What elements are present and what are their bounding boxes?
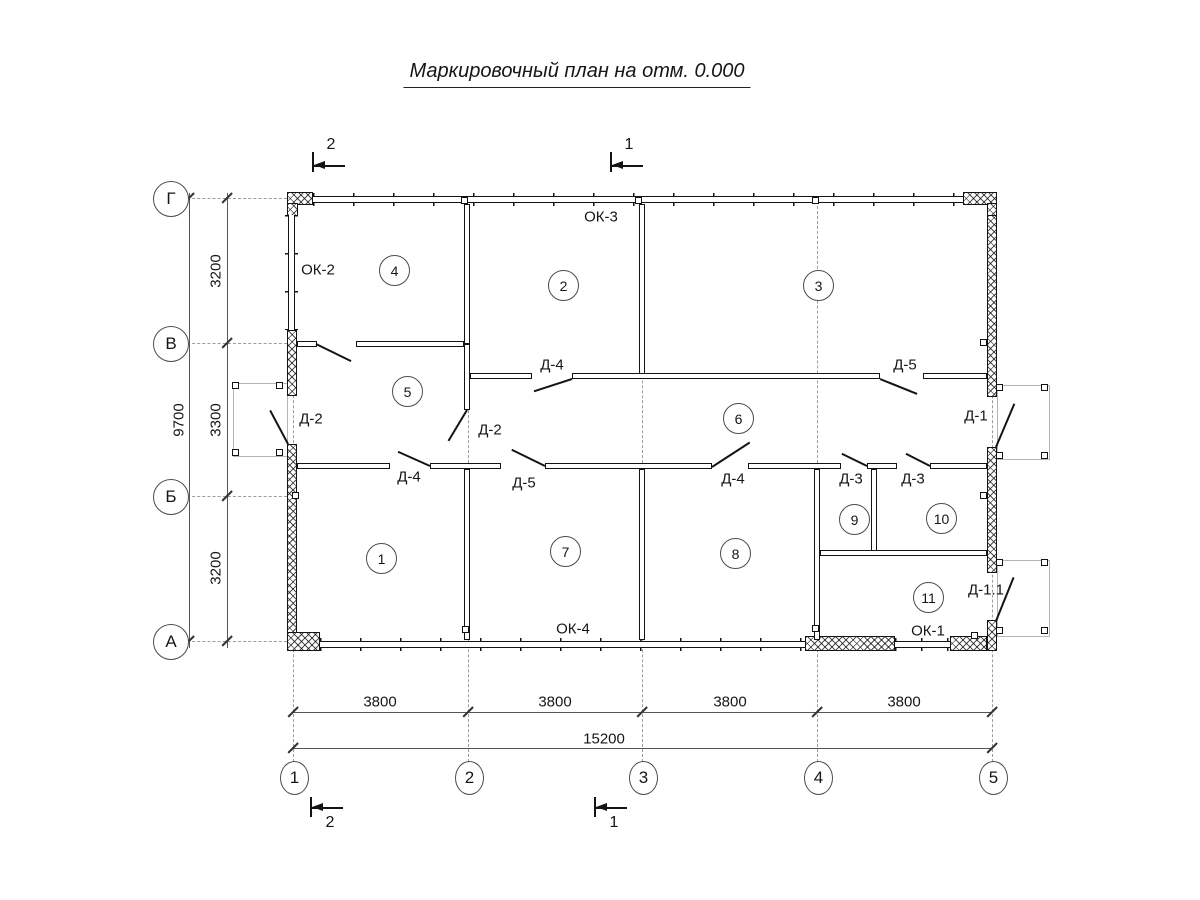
section-arrow-icon [612,161,623,169]
partition-wall [297,341,317,347]
grid-row-label-v: В [153,326,189,362]
wall-anchor [635,197,642,204]
door-leaf-d4 [711,442,750,468]
grid-line-row-g [187,198,287,199]
partition-wall [572,373,880,379]
wall-anchor [980,492,987,499]
wall-anchor [971,632,978,639]
dim-value-3800-4: 3800 [887,694,920,711]
wall-anchor [462,626,469,633]
door-label-d1: Д-1 [964,408,988,425]
section-arrow-icon [312,803,323,811]
dim-line [189,193,190,648]
grid-line-row-v [187,343,287,344]
door-leaf-d3 [905,453,930,467]
dim-value-3300: 3300 [208,403,225,436]
dim-value-3200-top: 3200 [208,254,225,287]
grid-row-label-b: Б [153,479,189,515]
wall-segment [287,330,297,396]
partition-wall [464,204,470,344]
partition-wall [470,373,532,379]
partition-wall [923,373,987,379]
floor-plan-drawing: Маркировочный план на отм. 0.000 [0,0,1200,900]
dim-value-3800-1: 3800 [363,694,396,711]
window-band-ok1 [895,638,950,651]
door-label-d3: Д-3 [901,471,925,488]
grid-line-row-b [187,496,287,497]
partition-wall [464,469,470,640]
window-band-ok2 [285,215,298,330]
grid-row-label-g: Г [153,181,189,217]
window-label-ok2: ОК-2 [301,262,335,279]
grid-col-label-2: 2 [455,761,484,795]
section-arrow-icon [596,803,607,811]
room-number-6: 6 [723,403,754,434]
dim-value-3200-bottom: 3200 [208,551,225,584]
grid-col-label-1: 1 [280,761,309,795]
door-label-d5: Д-5 [512,475,536,492]
porch-post [1041,559,1048,566]
room-number-11: 11 [913,582,944,613]
door-label-d4: Д-4 [397,469,421,486]
partition-wall [871,469,877,556]
porch-post [232,449,239,456]
porch-post [996,384,1003,391]
dim-line [227,193,228,648]
room-number-8: 8 [720,538,751,569]
wall-anchor [812,625,819,632]
wall-segment [987,620,997,651]
porch-post [996,452,1003,459]
grid-col-label-5: 5 [979,761,1008,795]
partition-wall [639,469,645,640]
door-leaf-d4 [534,378,573,392]
window-label-ok3: ОК-3 [584,209,618,226]
dim-value-3800-3: 3800 [713,694,746,711]
door-label-d3: Д-3 [839,471,863,488]
room-number-5: 5 [392,376,423,407]
partition-wall [820,550,987,556]
door-leaf-d2 [448,409,468,441]
door-leaf-d4 [398,451,431,467]
porch-post [1041,384,1048,391]
door-label-d2: Д-2 [299,411,323,428]
dim-value-3800-2: 3800 [538,694,571,711]
porch-post [276,382,283,389]
section-label-2-bottom: 2 [326,814,335,832]
wall-anchor [292,492,299,499]
room-number-10: 10 [926,503,957,534]
dim-value-9700: 9700 [171,403,188,436]
partition-wall [356,341,464,347]
section-arrow-icon [314,161,325,169]
room-number-7: 7 [550,536,581,567]
porch-post [276,449,283,456]
dim-line [293,748,992,749]
wall-anchor [461,197,468,204]
room-number-2: 2 [548,270,579,301]
porch-post [1041,452,1048,459]
window-band-ok4 [320,638,805,651]
wall-segment [287,632,320,651]
porch-post [996,627,1003,634]
partition-wall [545,463,712,469]
grid-col-label-3: 3 [629,761,658,795]
page-title: Маркировочный план на отм. 0.000 [403,60,750,88]
porch-post [996,559,1003,566]
door-label-d4: Д-4 [540,357,564,374]
room-number-4: 4 [379,255,410,286]
room-number-3: 3 [803,270,834,301]
section-label-1-top: 1 [625,136,634,154]
door-leaf-d3 [841,453,867,467]
section-label-1-bottom: 1 [610,814,619,832]
grid-row-label-a: А [153,624,189,660]
partition-wall [748,463,841,469]
door-label-d2: Д-2 [478,422,502,439]
wall-segment [987,215,997,397]
section-label-2-top: 2 [327,136,336,154]
door-leaf-d2 [316,343,352,362]
porch-outline [233,383,288,457]
porch-post [1041,627,1048,634]
room-number-1: 1 [366,543,397,574]
wall-segment [987,447,997,573]
partition-wall [639,204,645,376]
door-label-d1-1: Д-1.1 [968,582,1004,599]
door-leaf-d5 [880,378,918,395]
grid-line-row-a [187,641,287,642]
wall-anchor [980,339,987,346]
door-label-d4: Д-4 [721,471,745,488]
wall-anchor [812,197,819,204]
wall-segment [287,444,297,635]
porch-post [232,382,239,389]
door-label-d5: Д-5 [893,357,917,374]
wall-segment [950,636,987,651]
dim-value-15200: 15200 [583,731,625,748]
partition-wall [297,463,390,469]
grid-col-label-4: 4 [804,761,833,795]
window-label-ok1: ОК-1 [911,623,945,640]
window-label-ok4: ОК-4 [556,621,590,638]
room-number-9: 9 [839,504,870,535]
door-leaf-d5 [511,449,545,467]
partition-wall [930,463,987,469]
